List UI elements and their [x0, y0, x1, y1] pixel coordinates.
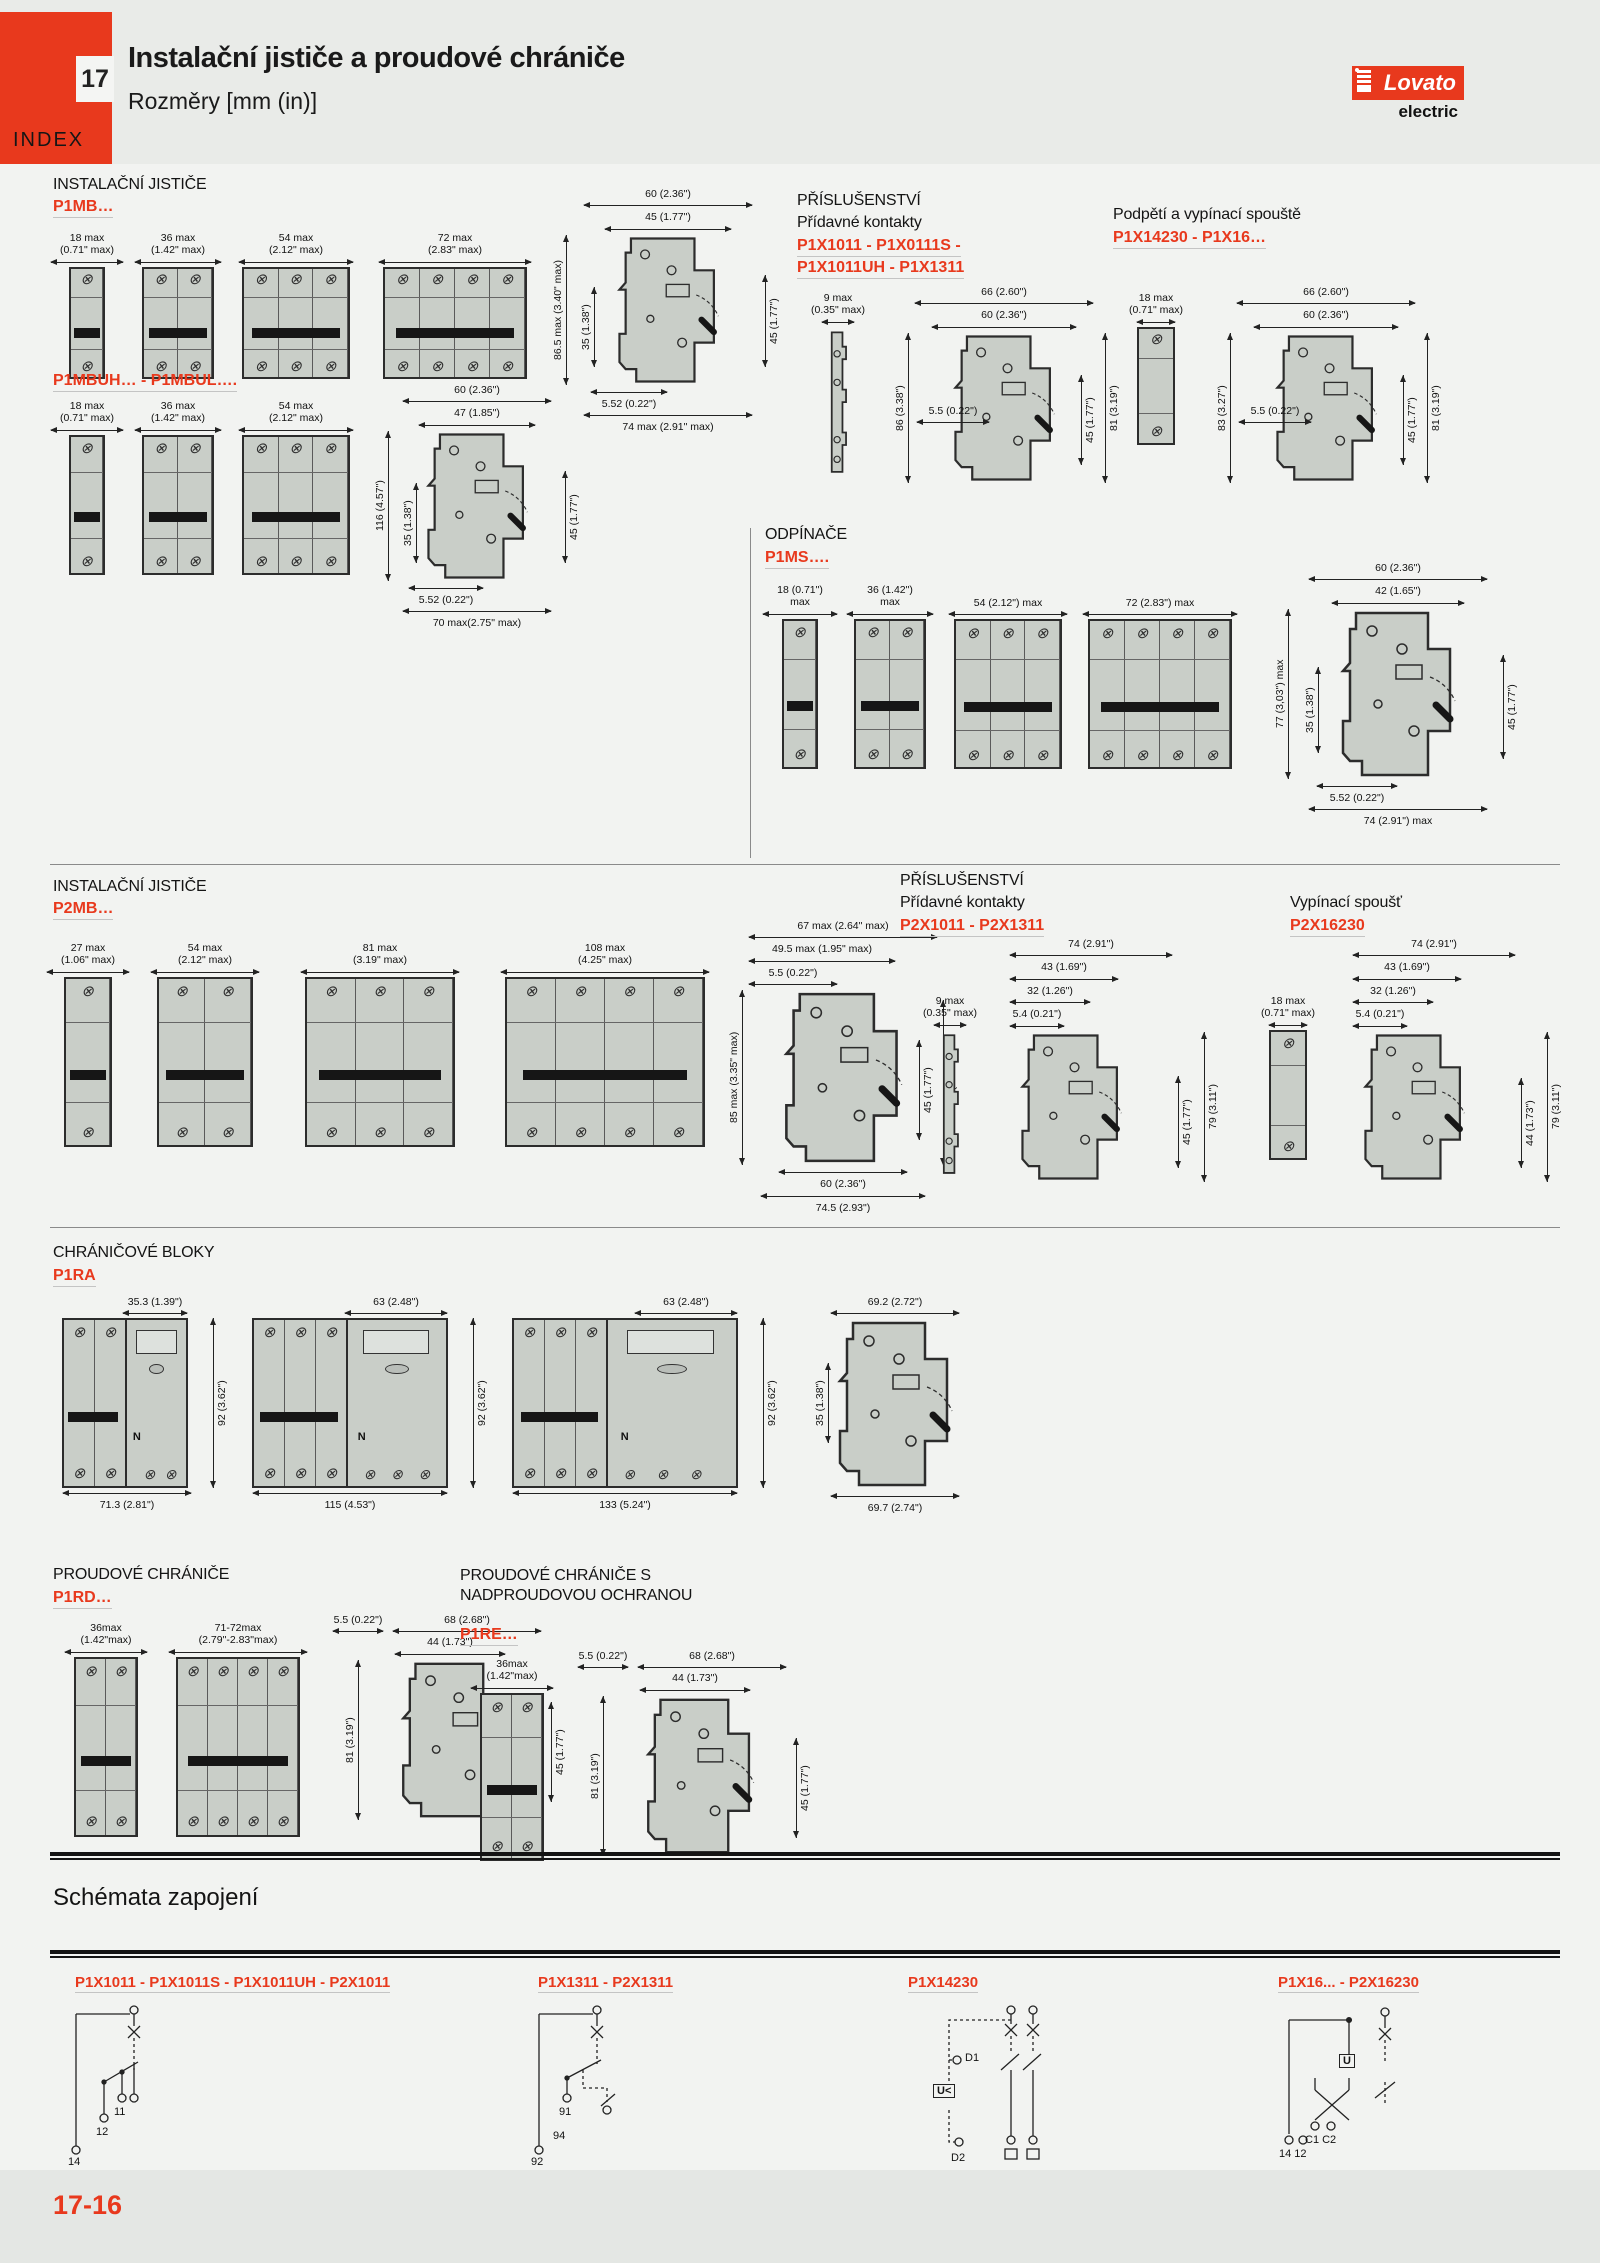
breaker-section	[64, 1320, 127, 1486]
dim-row: 70 max(2.75" max)	[402, 607, 552, 629]
s11-code: P1RE…	[460, 1626, 518, 1646]
vdim-height: 35 (1.38")	[814, 1363, 829, 1443]
dim-label: 27 max(1.06" max)	[46, 942, 130, 967]
breaker-pole	[268, 1659, 298, 1835]
dim-label: 72 max(2.83" max)	[378, 232, 532, 257]
drawing-p2mb-front-27mm: 27 max(1.06" max)	[46, 942, 130, 1147]
dim-line	[634, 1309, 738, 1318]
dim-line	[378, 258, 532, 267]
toggle-bar	[252, 512, 339, 522]
rcbo-front-2pole	[480, 1693, 544, 1861]
breaker-front-3pole	[242, 267, 350, 379]
trip-unit-front	[1137, 327, 1175, 445]
dim-label: 66 (2.60")	[914, 286, 1094, 298]
dim-row: 60 (2.36")	[1308, 562, 1488, 584]
trip-unit-side-profile	[1348, 1032, 1480, 1182]
dim-in: (1.42" max)	[134, 244, 222, 256]
dim-line	[512, 1489, 738, 1498]
terminal-label: 94	[553, 2130, 565, 2142]
vdim-height: 45 (1.77")	[1503, 655, 1518, 759]
breaker-pole	[64, 1320, 95, 1486]
dim-label: 74 (2.91")	[1352, 938, 1516, 950]
drawing-p1ra-side: 69.2 (2.72") 35 (1.38") 69.7 (2.74")	[810, 1296, 980, 1516]
dim-line	[1268, 1021, 1308, 1030]
drawing-p1x14-side: 66 (2.60") 60 (2.36") 83 (3.27") 5.5 (0.…	[1208, 286, 1444, 485]
footer-band	[0, 2170, 1600, 2263]
drawing-p1mb-front-54mm: 54 max(2.12" max)	[238, 232, 354, 379]
breaker-section	[514, 1320, 608, 1486]
wiring-diagram-p1x1011: 11 12 14	[60, 1998, 250, 2173]
s10-heading: PROUDOVÉ CHRÁNIČE	[53, 1566, 229, 1584]
dim-line	[1352, 1022, 1408, 1031]
drawing-p1mbuh-side: 60 (2.36") 47 (1.85") 116 (4.57") 35 (1.…	[372, 384, 582, 631]
dim-line	[168, 1648, 308, 1657]
breaker-pole	[455, 269, 490, 377]
wiring-diagram-p1x14230: D1 U< D2	[893, 1998, 1083, 2173]
terminal-label: 14	[68, 2156, 80, 2168]
breaker-pole	[1025, 621, 1060, 767]
dim-row: 47 (1.85")	[418, 407, 536, 429]
catalog-page: 17 INDEX Instalační jističe a proudové c…	[0, 0, 1600, 2263]
dim-row: 5.5 (0.22")	[916, 405, 990, 427]
toggle-bar	[861, 701, 918, 711]
dim-row: 42 (1.65")	[1331, 585, 1465, 607]
s7-subheading: Přídavné kontakty	[900, 894, 1025, 912]
voltage-coil-label: U	[1339, 2054, 1355, 2068]
drawing-p1ra-3pole-wide: 63 (2.48") N⊗⊗⊗ 92 (3.62") 133 (5.24")	[512, 1296, 762, 1513]
dim-row: 63 (2.48")	[344, 1296, 448, 1318]
breaker-pole	[1139, 329, 1173, 443]
dim-line	[470, 1684, 554, 1693]
dim-label: 60 (2.36")	[402, 384, 552, 396]
dim-line	[238, 258, 354, 267]
dim-label: 54 max(2.12" max)	[150, 942, 260, 967]
drawing-p1mb-front-36mm: 36 max(1.42" max)	[134, 232, 222, 379]
dim-line	[637, 1663, 787, 1672]
vdim-height: 81 (3.19")	[1427, 333, 1442, 483]
thick-rule	[50, 1852, 1560, 1860]
dim-row: 5.5 (0.22") 68 (2.68")	[577, 1650, 825, 1672]
dim-line	[1331, 599, 1465, 608]
dim-label: 60 (2.36")	[778, 1178, 908, 1190]
dim-label: 115 (4.53")	[252, 1499, 448, 1511]
breaker-pole	[144, 437, 178, 573]
dim-line	[238, 426, 354, 435]
wiring-diagram-svg	[1263, 1998, 1453, 2173]
breaker-pole	[254, 1320, 285, 1486]
breaker-pole	[307, 979, 356, 1145]
dim-line	[344, 1309, 448, 1318]
rcd-front-2pole	[74, 1657, 138, 1837]
breaker-pole	[244, 269, 279, 377]
rcd-front-4pole	[176, 1657, 300, 1837]
dim-label: 9 max(0.35" max)	[800, 292, 876, 317]
breaker-pole	[1090, 621, 1125, 767]
dim-label: 54 max(2.12" max)	[238, 400, 354, 425]
test-button	[385, 1364, 409, 1374]
s6-code: P2MB…	[53, 900, 113, 920]
dim-line	[748, 957, 896, 966]
breaker-pole	[482, 1695, 512, 1859]
dim-label: 18 max(0.71" max)	[1116, 292, 1196, 317]
test-button	[149, 1364, 164, 1374]
s7-code: P2X1011 - P2X1311	[900, 917, 1044, 937]
drawing-p1mb-front-18mm: 18 max(0.71" max)	[50, 232, 124, 379]
rcd-section: N⊗⊗⊗	[348, 1320, 446, 1486]
section-divider	[750, 528, 751, 858]
dim-mm: 36 max	[134, 232, 222, 244]
breaker-pole	[279, 269, 314, 377]
terminal-label: D2	[951, 2152, 965, 2164]
breaker-front-3pole	[305, 977, 455, 1147]
dim-line	[1253, 323, 1399, 332]
dim-label: 5.5 (0.22")	[332, 1614, 384, 1626]
vdim-height: 45 (1.77")	[1178, 1076, 1193, 1168]
dim-label: 18 (0.71")max	[762, 584, 838, 609]
dim-label: 71.3 (2.81")	[62, 1499, 192, 1511]
breaker-pole	[316, 1320, 346, 1486]
breaker-pole	[1160, 621, 1195, 767]
switch-front-1pole	[782, 619, 818, 769]
breaker-pole	[890, 621, 924, 767]
dim-row: 35.3 (1.39")	[122, 1296, 188, 1318]
toggle-bar	[523, 1070, 688, 1080]
dim-label: 71-72max(2.79"-2.83"max)	[168, 1622, 308, 1647]
toggle-bar	[787, 701, 814, 711]
breaker-pole	[356, 979, 405, 1145]
breaker-p	[205, 979, 251, 1145]
dim-row: 45 (1.77")	[604, 211, 732, 233]
dim-row: 74 (2.91") max	[1308, 805, 1488, 827]
dim-line	[931, 323, 1077, 332]
dim-label: 74 max (2.91" max)	[583, 421, 753, 433]
drawing-p1ms-front-54mm: 54 (2.12") max	[948, 597, 1068, 769]
dim-line	[778, 1168, 908, 1177]
dim-line	[639, 1686, 751, 1695]
vdim-height: 86.5 max (3.40" max)	[552, 235, 567, 385]
dim-row: 32 (1.26")	[1352, 985, 1434, 1007]
dim-label: 74 (2.91") max	[1308, 815, 1488, 827]
dim-line	[762, 610, 838, 619]
vdim-height: 92 (3.62")	[763, 1318, 778, 1488]
dim-label: 36max(1.42"max)	[64, 1622, 148, 1647]
schematic-label-2: P1X1311 - P2X1311	[538, 1974, 673, 1993]
dim-line	[577, 1663, 629, 1672]
vdim-height: 81 (3.19")	[589, 1696, 604, 1856]
breaker-pole	[71, 269, 103, 377]
neutral-label: N	[133, 1431, 141, 1443]
neutral-label: N	[621, 1431, 629, 1443]
terminal-label: 11	[114, 2106, 125, 2118]
vdim-height: 79 (3.11")	[1204, 1032, 1219, 1182]
dim-label: 5.4 (0.21")	[1009, 1008, 1065, 1020]
dim-line	[402, 397, 552, 406]
breaker-pole	[605, 979, 654, 1145]
schematic-label-4: P1X16... - P2X16230	[1278, 1974, 1419, 1993]
vdim-height: 92 (3.62")	[473, 1318, 488, 1488]
dim-label: 5.52 (0.22")	[590, 398, 668, 410]
vdim-height: 81 (3.19")	[344, 1660, 359, 1820]
breaker-pole	[512, 1695, 542, 1859]
trip-unit-side-profile	[1005, 1032, 1137, 1182]
logo-grid-icon	[1357, 70, 1371, 92]
breaker-front-1pole	[69, 267, 105, 379]
vdim-height: 79 (3.11")	[1547, 1032, 1562, 1182]
breaker-front-3pole	[242, 435, 350, 575]
dim-line	[1009, 998, 1091, 1007]
dim-label: 68 (2.68")	[637, 1650, 787, 1662]
breaker-pole	[420, 269, 455, 377]
rcd-window	[136, 1330, 177, 1354]
logo-main-text: Lovato	[1384, 70, 1456, 96]
vdim-height: 35 (1.38")	[1304, 667, 1319, 753]
drawing-p1mb-side: 60 (2.36") 45 (1.77") 86.5 max (3.40" ma…	[548, 188, 788, 435]
breaker-pole	[784, 621, 816, 767]
breaker-side-profile	[773, 990, 913, 1165]
dim-label: 69.2 (2.72")	[830, 1296, 960, 1308]
dim-label: 18 max(0.71" max)	[50, 400, 124, 425]
s1-heading: INSTALAČNÍ JISTIČE	[53, 176, 206, 194]
toggle-bar	[81, 1756, 131, 1766]
s5-code: P1MS….	[765, 549, 829, 569]
breaker-pole	[76, 1659, 106, 1835]
vdim-height: 83 (3.27")	[1216, 333, 1231, 483]
breaker-pole	[66, 979, 110, 1145]
dim-line	[1308, 805, 1488, 814]
drawing-p2mb-front-108mm: 108 max(4.25" max)	[500, 942, 710, 1147]
dim-line	[150, 968, 260, 977]
dim-row: 69.2 (2.72")	[830, 1296, 960, 1318]
dim-label: 5.5 (0.22")	[577, 1650, 629, 1662]
wiring-diagram-svg	[60, 1998, 250, 2173]
s2-code-line1: P1X1011 - P1X0111S -	[797, 237, 961, 257]
breaker-pole	[178, 269, 212, 377]
dim-line	[590, 388, 668, 397]
drawing-p1ra-3pole-compact: 63 (2.48") N⊗⊗⊗ 92 (3.62") 115 (4.53")	[252, 1296, 472, 1513]
dim-row: 44 (1.73")	[639, 1672, 751, 1694]
dim-label: 5.5 (0.22")	[1238, 405, 1312, 417]
s9-code: P1RA	[53, 1267, 96, 1287]
rcbo-side-profile	[833, 1319, 957, 1489]
page-subtitle: Rozměry [mm (in)]	[128, 88, 317, 115]
drawing-p1ra-2pole: 35.3 (1.39") N⊗⊗ 92 (3.62") 71.3 (2.81")	[62, 1296, 212, 1513]
toggle-bar	[396, 328, 514, 338]
breaker-pole	[71, 437, 103, 573]
dim-mm: 54 max	[238, 232, 354, 244]
dim-line	[583, 411, 753, 420]
drawing-p1mbuh-front-18mm: 18 max(0.71" max)	[50, 400, 124, 575]
wiring-diagram-p1x1311: 91 94 92	[523, 1998, 713, 2173]
dim-row: 74 max (2.91" max)	[583, 411, 753, 433]
s2-heading: PŘÍSLUŠENSTVÍ	[797, 192, 921, 210]
dim-line	[408, 584, 484, 593]
terminal-label: D1	[965, 2052, 979, 2064]
drawing-p2x16-front: 18 max(0.71" max)	[1248, 995, 1328, 1160]
dim-line	[418, 421, 536, 430]
vdim-height: 45 (1.77")	[796, 1738, 811, 1838]
breaker-pole	[238, 1659, 268, 1835]
dim-row: 43 (1.69")	[1352, 961, 1462, 983]
dim-line	[933, 1021, 967, 1030]
wiring-diagram-p1x16: U C1 C2 14 12	[1263, 1998, 1453, 2173]
drawing-p1ms-front-72mm: 72 (2.83") max	[1082, 597, 1238, 769]
drawing-p2mb-front-54mm: 54 max(2.12" max)	[150, 942, 260, 1147]
schematics-title: Schémata zapojení	[53, 1884, 258, 1912]
dim-line	[50, 258, 124, 267]
toggle-bar	[68, 1412, 118, 1422]
logo-sub-text: electric	[1352, 102, 1458, 122]
vdim-height: 92 (3.62")	[213, 1318, 228, 1488]
breaker-pole	[1271, 1032, 1305, 1158]
dim-row: 5.4 (0.21")	[1352, 1008, 1408, 1030]
breaker-pole	[404, 979, 453, 1145]
dim-label: 60 (2.36")	[583, 188, 753, 200]
breaker-pole	[514, 1320, 545, 1486]
dim-label: 32 (1.26")	[1352, 985, 1434, 997]
section-rule	[50, 864, 1560, 865]
s2-subheading: Přídavné kontakty	[797, 214, 922, 232]
drawing-p2x-aux-front: 9 max(0.35" max)	[912, 995, 988, 1180]
breaker-front-2pole	[157, 977, 253, 1147]
dim-label: 49.5 max (1.95" max)	[748, 943, 896, 955]
dim-label: 9 max(0.35" max)	[912, 995, 988, 1020]
dim-line	[122, 1309, 188, 1318]
dim-row: 43 (1.69")	[1009, 961, 1119, 983]
dim-line	[748, 980, 838, 989]
lovato-logo: Lovato	[1352, 66, 1464, 100]
dim-row: 5.52 (0.22")	[408, 584, 484, 606]
dim-row: 74.5 (2.93")	[760, 1192, 926, 1214]
s3-code: P1X14230 - P1X16…	[1113, 229, 1266, 249]
dim-label: 36 max(1.42" max)	[134, 232, 222, 257]
dim-label: 66 (2.60")	[1236, 286, 1416, 298]
terminal-label: 12	[96, 2126, 108, 2138]
vdim-height: 45 (1.77")	[565, 471, 580, 563]
dim-row: 60 (2.36")	[1253, 309, 1399, 331]
dim-label: 5.5 (0.22")	[916, 405, 990, 417]
rcd-window	[363, 1330, 430, 1354]
wiring-diagram-svg	[893, 1998, 1083, 2173]
s1-code: P1MB…	[53, 198, 113, 218]
drawing-p1ms-front-18mm: 18 (0.71")max	[762, 584, 838, 769]
dim-label: 60 (2.36")	[1253, 309, 1399, 321]
section-rule	[50, 1227, 1560, 1228]
dim-line	[1308, 575, 1488, 584]
toggle-bar	[166, 1070, 243, 1080]
s6-heading: INSTALAČNÍ JISTIČE	[53, 878, 206, 896]
dim-label: 63 (2.48")	[634, 1296, 738, 1308]
dim-line	[1352, 975, 1462, 984]
dim-line	[1009, 951, 1173, 960]
switch-front-2pole	[854, 619, 926, 769]
dim-line	[62, 1489, 192, 1498]
switch-side-profile	[1329, 609, 1467, 779]
breaker-front-4pole	[383, 267, 527, 379]
rcd-window	[627, 1330, 713, 1354]
breaker-pole	[507, 979, 556, 1145]
breaker-front-1pole	[69, 435, 105, 575]
switch-front-3pole	[954, 619, 1062, 769]
dim-label: 5.5 (0.22")	[748, 967, 838, 979]
dim-line	[46, 968, 130, 977]
breaker-pole	[556, 979, 605, 1145]
breaker-pole	[313, 437, 348, 573]
dim-row: 5.52 (0.22")	[1316, 782, 1398, 804]
dim-in: (2.12" max)	[238, 244, 354, 256]
dim-row: 5.4 (0.21")	[1009, 1008, 1065, 1030]
toggle-bar	[521, 1412, 599, 1422]
dim-label: 133 (5.24")	[512, 1499, 738, 1511]
s7-heading: PŘÍSLUŠENSTVÍ	[900, 872, 1024, 890]
breaker-pole	[313, 269, 348, 377]
drawing-p1rd-front-72mm: 71-72max(2.79"-2.83"max)	[168, 1622, 308, 1837]
breaker-pole	[144, 269, 178, 377]
toggle-bar	[319, 1070, 442, 1080]
breaker-pole	[576, 1320, 606, 1486]
dim-label: 5.52 (0.22")	[1316, 792, 1398, 804]
breaker-pole	[95, 1320, 125, 1486]
drawing-p1x-side: 66 (2.60") 60 (2.36") 86 (3.38") 5.5 (0.…	[886, 286, 1122, 485]
dim-line	[821, 318, 855, 327]
dim-label: 74.5 (2.93")	[760, 1202, 926, 1214]
breaker-pole	[991, 621, 1026, 767]
dim-line	[1082, 610, 1238, 619]
breaker-pole	[1195, 621, 1230, 767]
breaker-pole	[385, 269, 420, 377]
rcd-section: N⊗⊗⊗	[608, 1320, 736, 1486]
terminal-label: 92	[531, 2156, 543, 2168]
s4-code: P1MBUH… - P1MBUL….	[53, 372, 237, 392]
dim-row: 74 (2.91")	[1352, 938, 1516, 960]
dim-line	[1352, 998, 1434, 1007]
page-number: 17-16	[53, 2190, 122, 2221]
s10-code: P1RD…	[53, 1589, 112, 1609]
dim-label: 44 (1.73")	[639, 1672, 751, 1684]
breaker-pole	[545, 1320, 576, 1486]
dim-line	[402, 607, 552, 616]
dim-row: 60 (2.36")	[583, 188, 753, 210]
dim-label: 70 max(2.75" max)	[402, 617, 552, 629]
wiring-diagram-svg	[523, 1998, 713, 2173]
drawing-p2x16-side: 74 (2.91") 43 (1.69") 32 (1.26") 5.4 (0.…	[1338, 938, 1568, 1184]
breaker-pole	[856, 621, 890, 767]
s8-code: P2X16230	[1290, 917, 1365, 937]
dim-in: (0.71" max)	[50, 244, 124, 256]
s3-heading: Podpětí a vypínací spouště	[1113, 206, 1301, 224]
chapter-number: 17	[76, 56, 114, 102]
breaker-pole	[1125, 621, 1160, 767]
dim-line	[916, 418, 990, 427]
test-button	[657, 1364, 687, 1374]
dim-line	[1236, 299, 1416, 308]
drawing-p1re-side: 5.5 (0.22") 68 (2.68") 44 (1.73") 81 (3.…	[575, 1650, 825, 1858]
dim-line	[948, 610, 1068, 619]
dim-row: 60 (2.36")	[931, 309, 1077, 331]
breaker-pole	[106, 1659, 136, 1835]
dim-label: 18 max(0.71" max)	[1248, 995, 1328, 1020]
logo-registered-icon	[1355, 68, 1359, 72]
rcbo-front: N⊗⊗⊗	[512, 1318, 738, 1488]
dim-label: 63 (2.48")	[344, 1296, 448, 1308]
dim-label: 81 max(3.19" max)	[300, 942, 460, 967]
breaker-side-profile	[417, 431, 537, 581]
vdim-height: 77 (3,03") max	[1274, 609, 1289, 779]
dim-row: 71.3 (2.81")	[62, 1489, 192, 1511]
trip-unit-front	[1269, 1030, 1307, 1160]
toggle-bar	[70, 1070, 107, 1080]
dim-row: 49.5 max (1.95" max)	[748, 943, 896, 965]
breaker-section	[254, 1320, 348, 1486]
